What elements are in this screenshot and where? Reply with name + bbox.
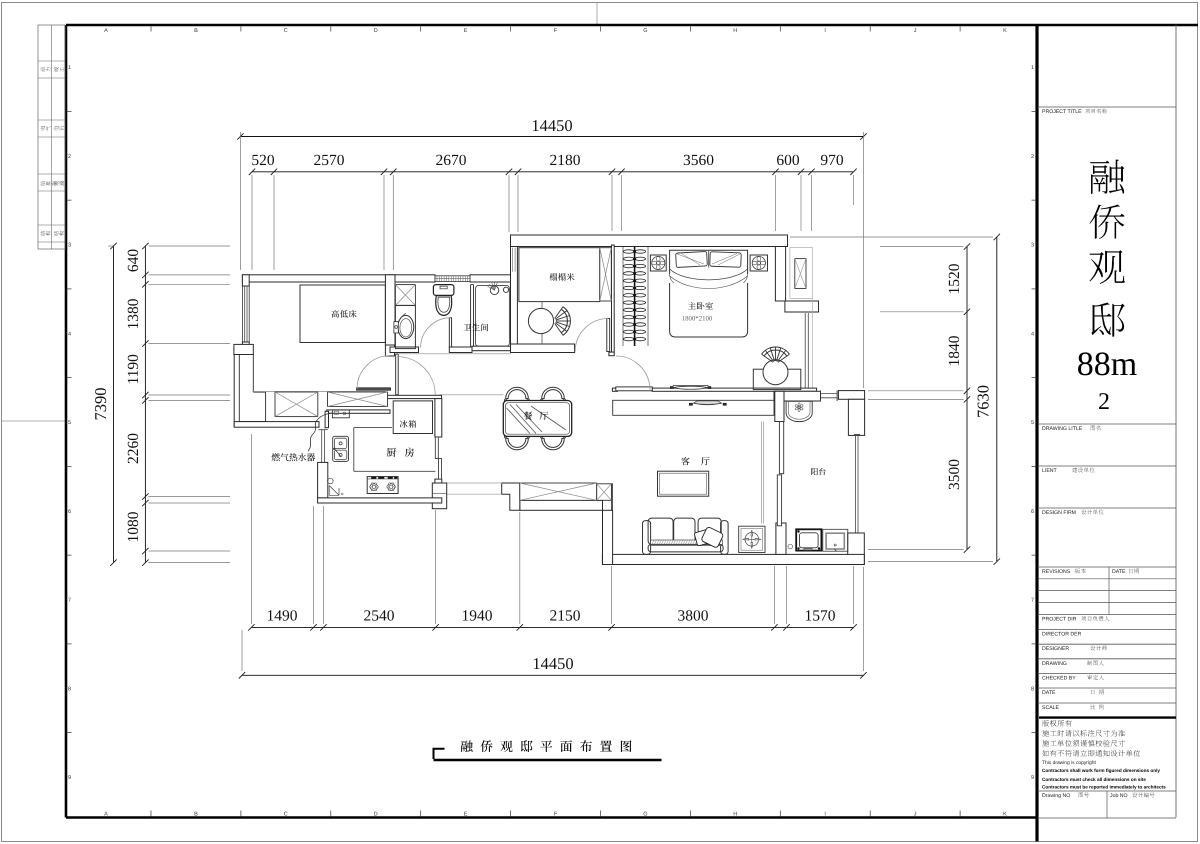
svg-text:E: E <box>464 28 468 34</box>
svg-text:Drawing NO: Drawing NO <box>1042 793 1070 799</box>
svg-text:DESIGNER: DESIGNER <box>1042 646 1069 652</box>
svg-text:88m: 88m <box>1077 346 1137 383</box>
svg-text:5: 5 <box>1031 420 1034 426</box>
svg-text:PROJECT TITLE: PROJECT TITLE <box>1042 109 1082 115</box>
svg-text:1570: 1570 <box>805 608 836 625</box>
svg-text:H: H <box>733 28 737 34</box>
svg-text:8: 8 <box>68 686 71 692</box>
svg-text:DATE: DATE <box>1112 569 1126 575</box>
svg-text:K: K <box>1003 28 1007 34</box>
svg-text:1800*2100: 1800*2100 <box>682 316 713 323</box>
svg-text:I: I <box>824 28 826 34</box>
svg-text:2: 2 <box>68 154 71 160</box>
svg-text:2: 2 <box>1031 154 1034 160</box>
svg-text:J: J <box>914 812 917 818</box>
svg-text:SCALE: SCALE <box>1042 705 1060 711</box>
svg-text:7390: 7390 <box>91 388 110 421</box>
svg-text:14450: 14450 <box>532 654 573 673</box>
svg-text:This drawing is copyright: This drawing is copyright <box>1042 760 1096 766</box>
svg-text:DRAWING: DRAWING <box>1042 661 1067 667</box>
svg-text:G: G <box>643 812 647 818</box>
svg-text:DESIGN FIRM: DESIGN FIRM <box>1042 510 1076 516</box>
svg-text:2540: 2540 <box>364 608 395 625</box>
svg-text:6: 6 <box>1031 509 1034 515</box>
svg-text:2570: 2570 <box>314 152 345 169</box>
svg-text:6: 6 <box>68 509 71 515</box>
svg-text:C: C <box>284 28 288 34</box>
svg-text:Contractors must check all dim: Contractors must check all dimensions on… <box>1042 777 1146 782</box>
svg-text:4: 4 <box>1031 331 1034 337</box>
svg-text:600: 600 <box>776 152 800 169</box>
svg-text:PROJECT DIR: PROJECT DIR <box>1042 617 1077 623</box>
svg-text:520: 520 <box>251 152 275 169</box>
svg-text:5: 5 <box>68 420 71 426</box>
svg-text:3: 3 <box>1031 243 1034 249</box>
svg-text:3: 3 <box>68 243 71 249</box>
svg-text:7: 7 <box>1031 598 1034 604</box>
svg-text:DATE: DATE <box>1042 690 1056 696</box>
svg-text:DIRECTOR DER: DIRECTOR DER <box>1042 632 1082 638</box>
svg-text:9: 9 <box>68 775 71 781</box>
svg-text:D: D <box>374 28 378 34</box>
svg-text:2180: 2180 <box>550 152 581 169</box>
svg-text:3800: 3800 <box>678 608 709 625</box>
svg-text:4: 4 <box>68 331 71 337</box>
svg-text:2670: 2670 <box>436 152 467 169</box>
svg-text:LIENT: LIENT <box>1042 468 1058 474</box>
svg-text:8: 8 <box>1031 686 1034 692</box>
svg-text:Job NO: Job NO <box>1110 793 1128 799</box>
svg-text:REVISIONS: REVISIONS <box>1042 569 1071 575</box>
svg-text:Contractors must be reported i: Contractors must be reported immediately… <box>1042 785 1166 790</box>
svg-text:G: G <box>643 28 647 34</box>
svg-text:2: 2 <box>1098 389 1110 415</box>
svg-text:2150: 2150 <box>550 608 581 625</box>
svg-text:640: 640 <box>125 249 142 273</box>
svg-text:7: 7 <box>68 598 71 604</box>
svg-text:1940: 1940 <box>462 608 493 625</box>
svg-text:Contractors shall work form fi: Contractors shall work form figured dime… <box>1042 768 1160 773</box>
svg-text:1: 1 <box>68 65 71 71</box>
svg-text:J: J <box>914 28 917 34</box>
svg-text:F: F <box>554 28 558 34</box>
svg-text:A: A <box>104 28 108 34</box>
svg-text:D: D <box>374 812 378 818</box>
svg-text:1: 1 <box>1031 65 1034 71</box>
svg-text:7630: 7630 <box>974 385 993 418</box>
svg-text:970: 970 <box>820 152 844 169</box>
svg-text:1840: 1840 <box>946 335 963 366</box>
svg-text:3500: 3500 <box>946 459 963 490</box>
svg-text:B: B <box>194 28 198 34</box>
svg-text:CHECKED BY: CHECKED BY <box>1042 676 1076 682</box>
svg-text:14450: 14450 <box>531 116 572 135</box>
svg-text:1380: 1380 <box>125 298 142 329</box>
svg-text:3560: 3560 <box>683 152 714 169</box>
svg-text:1490: 1490 <box>267 608 298 625</box>
svg-text:K: K <box>1003 812 1007 818</box>
svg-text:1190: 1190 <box>125 354 142 385</box>
svg-text:9: 9 <box>1031 775 1034 781</box>
svg-text:1080: 1080 <box>125 511 142 542</box>
svg-text:1520: 1520 <box>946 263 963 294</box>
svg-text:C: C <box>284 812 288 818</box>
svg-text:E: E <box>464 812 468 818</box>
svg-text:DRAWING LITLE: DRAWING LITLE <box>1042 426 1083 432</box>
svg-text:H: H <box>733 812 737 818</box>
svg-text:B: B <box>194 812 198 818</box>
svg-text:2260: 2260 <box>125 433 142 464</box>
svg-text:A: A <box>104 812 108 818</box>
